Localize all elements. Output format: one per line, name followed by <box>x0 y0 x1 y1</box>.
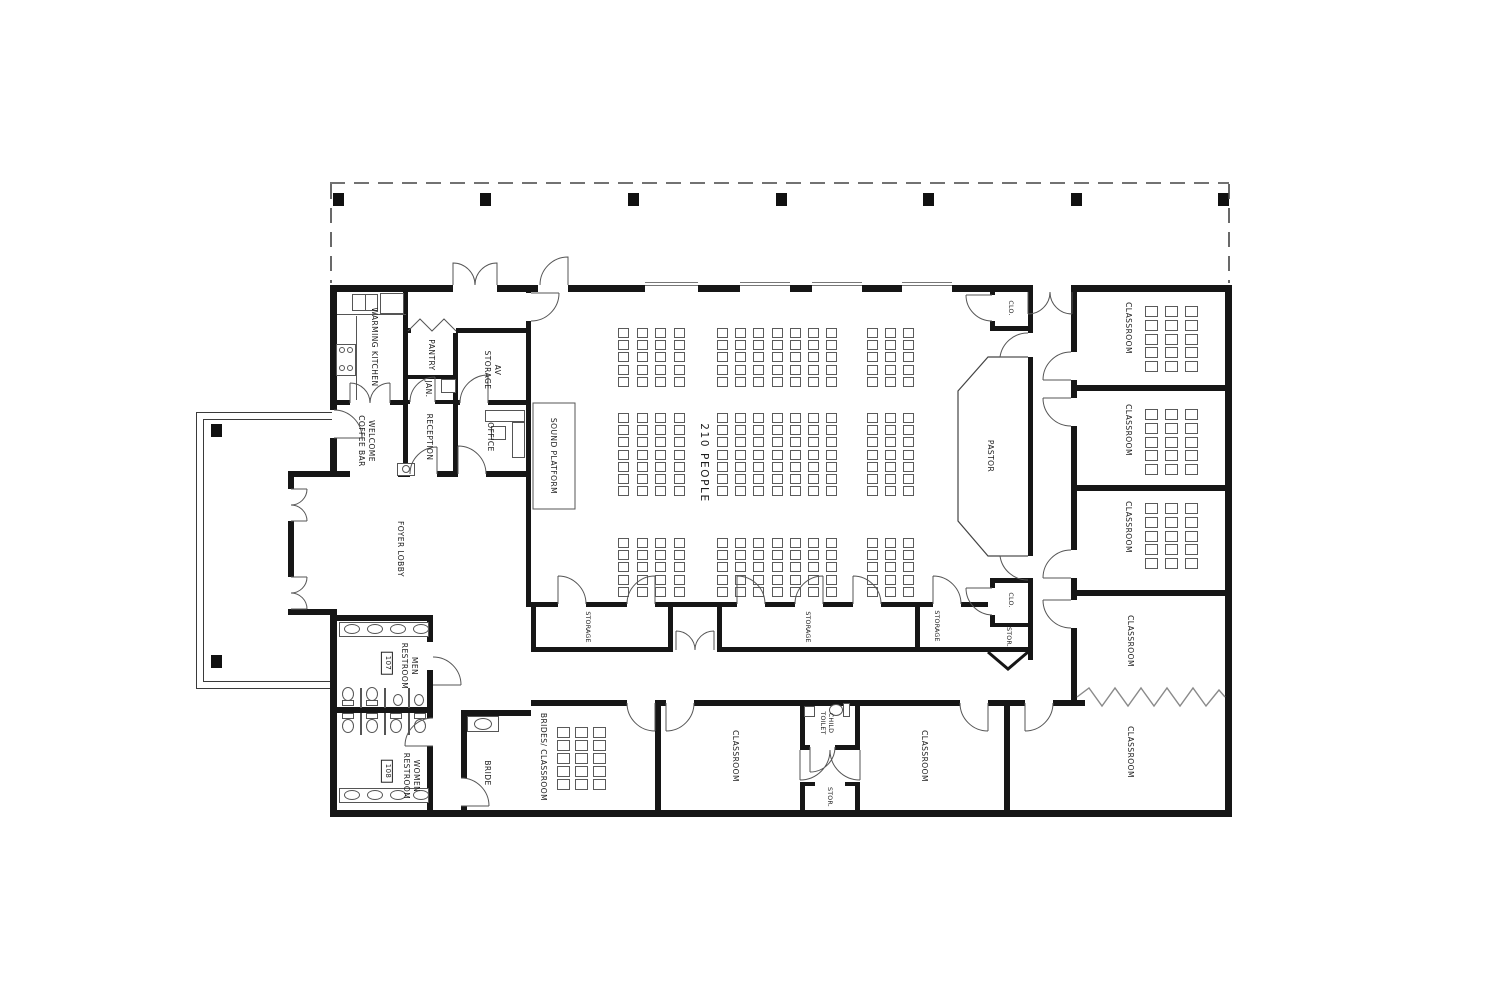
chair <box>808 413 819 423</box>
partition-line <box>365 294 366 311</box>
chair <box>808 377 819 387</box>
wall <box>1077 485 1225 491</box>
chair <box>790 437 801 447</box>
chair <box>557 727 570 738</box>
chair <box>826 575 837 585</box>
chair <box>735 562 746 572</box>
chair <box>717 462 728 472</box>
room-number-107: 107 <box>381 652 393 675</box>
room-label-office: OFFICE <box>485 422 495 451</box>
wall <box>531 700 627 706</box>
chair <box>903 462 914 472</box>
structural-column <box>333 193 344 206</box>
chair <box>903 377 914 387</box>
room-label-clo-top: CLO. <box>1006 300 1014 315</box>
floor-plan: WARMING KITCHEN PANTRY JAN. AV STORAGE R… <box>0 0 1500 1000</box>
chair <box>1165 320 1178 331</box>
chair <box>1165 334 1178 345</box>
chair <box>674 538 685 548</box>
room-label-clo-bottom: CLO. <box>1006 592 1014 607</box>
chair <box>735 377 746 387</box>
chair <box>655 562 666 572</box>
chair <box>1165 437 1178 448</box>
wall <box>1028 580 1033 660</box>
chair <box>1145 464 1158 475</box>
chair <box>885 462 896 472</box>
chair <box>1145 450 1158 461</box>
room-label-classroom-2: CLASSROOM <box>1123 404 1133 456</box>
chair <box>1185 464 1198 475</box>
chair <box>753 328 764 338</box>
plumbing-fixture <box>474 718 492 730</box>
chair <box>717 377 728 387</box>
chair <box>885 550 896 560</box>
wall <box>1077 590 1225 596</box>
wall <box>288 471 350 477</box>
chair <box>618 377 629 387</box>
chair <box>717 486 728 496</box>
chair <box>637 587 648 597</box>
wall <box>990 578 1033 583</box>
chair <box>772 328 783 338</box>
fixture <box>512 422 525 458</box>
chair <box>618 462 629 472</box>
chair <box>637 450 648 460</box>
chair <box>772 352 783 362</box>
wall <box>486 471 531 477</box>
chair <box>674 462 685 472</box>
chair <box>753 352 764 362</box>
chair <box>637 425 648 435</box>
wall <box>668 602 673 652</box>
chair <box>772 486 783 496</box>
chair <box>655 575 666 585</box>
chair <box>655 437 666 447</box>
entry-porch-inner <box>203 419 332 682</box>
chair <box>867 365 878 375</box>
chair <box>826 328 837 338</box>
chair <box>1165 423 1178 434</box>
chair <box>575 779 588 790</box>
chair <box>867 377 878 387</box>
chair <box>655 425 666 435</box>
chair <box>790 550 801 560</box>
chair <box>1145 558 1158 569</box>
room-label-classroom-3: CLASSROOM <box>1123 501 1133 553</box>
chair <box>717 413 728 423</box>
wall <box>288 521 294 577</box>
chair <box>772 462 783 472</box>
chair <box>808 474 819 484</box>
chair <box>790 450 801 460</box>
chair <box>1185 320 1198 331</box>
fixture <box>843 703 850 717</box>
chair <box>903 562 914 572</box>
chair <box>1145 320 1158 331</box>
chair <box>637 352 648 362</box>
wall <box>1004 706 1010 810</box>
plumbing-fixture <box>367 790 383 800</box>
wall <box>990 326 1033 331</box>
plumbing-fixture <box>390 624 406 634</box>
wall <box>1077 385 1225 391</box>
window-sill <box>902 282 952 286</box>
chair <box>885 352 896 362</box>
sanctuary-capacity-label: 210 PEOPLE <box>696 423 710 502</box>
plumbing-fixture <box>339 347 345 353</box>
plumbing-fixture <box>342 719 354 733</box>
room-label-storage-middle: STORAGE <box>803 611 811 642</box>
chair <box>885 538 896 548</box>
chair <box>826 538 837 548</box>
chair <box>593 727 606 738</box>
chair <box>735 474 746 484</box>
chair <box>1165 347 1178 358</box>
chair <box>637 340 648 350</box>
chair <box>674 486 685 496</box>
chair <box>618 340 629 350</box>
chair <box>790 575 801 585</box>
chair <box>593 753 606 764</box>
wall <box>1053 700 1085 706</box>
chair <box>674 425 685 435</box>
wall <box>800 786 805 810</box>
wall <box>655 706 661 810</box>
chair <box>717 550 728 560</box>
room-label-classroom-1: CLASSROOM <box>1123 302 1133 354</box>
wall <box>488 400 531 405</box>
chair <box>790 377 801 387</box>
chair <box>717 328 728 338</box>
chair <box>867 550 878 560</box>
room-label-classroom-b: CLASSROOM <box>919 730 929 782</box>
chair <box>790 587 801 597</box>
plumbing-fixture <box>366 687 378 701</box>
wall <box>823 602 853 607</box>
chair <box>674 575 685 585</box>
chair <box>753 562 764 572</box>
chair <box>1165 464 1178 475</box>
chair <box>717 437 728 447</box>
structural-column <box>776 193 787 206</box>
chair <box>903 425 914 435</box>
room-label-stor-bottom: STOR. <box>825 787 833 807</box>
chair <box>735 575 746 585</box>
room-label-stor-right: STOR. <box>1004 627 1012 647</box>
chair <box>618 352 629 362</box>
chair <box>1185 423 1198 434</box>
plumbing-fixture <box>347 365 353 371</box>
room-label-bride: BRIDE <box>482 760 492 785</box>
fixture <box>441 379 456 393</box>
wall <box>765 602 795 607</box>
chair <box>1145 531 1158 542</box>
room-label-welcome-coffee-bar: WELCOME COFFEE BAR <box>356 415 376 467</box>
chair <box>557 766 570 777</box>
chair <box>903 413 914 423</box>
chair <box>655 340 666 350</box>
chair <box>772 437 783 447</box>
plumbing-fixture <box>367 624 383 634</box>
chair <box>808 538 819 548</box>
chair <box>1165 450 1178 461</box>
chair <box>655 352 666 362</box>
plumbing-fixture <box>390 719 402 733</box>
plumbing-fixture <box>393 694 403 706</box>
chair <box>674 413 685 423</box>
chair <box>618 587 629 597</box>
chair <box>826 462 837 472</box>
chair <box>1165 409 1178 420</box>
chair <box>717 538 728 548</box>
chair <box>867 425 878 435</box>
chair <box>637 538 648 548</box>
chair <box>885 365 896 375</box>
chair <box>1145 347 1158 358</box>
wall <box>526 321 531 607</box>
chair <box>717 562 728 572</box>
chair <box>903 365 914 375</box>
chair <box>790 352 801 362</box>
chair <box>717 425 728 435</box>
chair <box>885 486 896 496</box>
chair <box>808 437 819 447</box>
fixture <box>804 706 815 717</box>
wall <box>568 285 645 292</box>
room-label-storage-left: STORAGE <box>583 611 591 642</box>
wall <box>800 745 810 750</box>
chair <box>1145 423 1158 434</box>
wall <box>427 746 433 817</box>
chair <box>826 425 837 435</box>
wall <box>497 285 538 292</box>
partition-line <box>408 713 410 735</box>
chair <box>903 474 914 484</box>
chair <box>717 474 728 484</box>
wall <box>531 602 536 652</box>
room-label-storage-right: STORAGE <box>932 610 940 641</box>
chair <box>1185 361 1198 372</box>
chair <box>593 766 606 777</box>
chair <box>867 413 878 423</box>
chair <box>674 550 685 560</box>
chair <box>772 474 783 484</box>
chair <box>717 450 728 460</box>
partition-line <box>356 316 357 400</box>
room-label-classroom-4: CLASSROOM <box>1125 615 1135 667</box>
wall <box>717 647 1033 652</box>
chair <box>790 340 801 350</box>
partition-line <box>408 688 410 708</box>
wall <box>288 477 294 489</box>
chair <box>753 575 764 585</box>
chair <box>790 328 801 338</box>
chair <box>1185 558 1198 569</box>
chair <box>808 328 819 338</box>
chair <box>1185 503 1198 514</box>
chair <box>575 766 588 777</box>
chair <box>637 562 648 572</box>
chair <box>808 562 819 572</box>
chair <box>885 587 896 597</box>
chair <box>637 462 648 472</box>
chair <box>753 486 764 496</box>
chair <box>735 486 746 496</box>
wall <box>427 670 433 718</box>
chair <box>826 352 837 362</box>
chair <box>772 587 783 597</box>
wall <box>1225 285 1232 817</box>
plumbing-fixture <box>344 624 360 634</box>
chair <box>867 562 878 572</box>
partition-line <box>360 713 362 735</box>
chair <box>808 575 819 585</box>
chair <box>655 365 666 375</box>
wall <box>990 615 995 623</box>
chair <box>885 328 896 338</box>
chair <box>735 538 746 548</box>
room-label-janitor: JAN. <box>423 380 433 397</box>
plumbing-fixture <box>414 719 426 733</box>
chair <box>772 413 783 423</box>
room-label-child-toilet: CHILD TOILET <box>818 711 834 734</box>
chair <box>674 352 685 362</box>
chair <box>885 474 896 484</box>
chair <box>575 753 588 764</box>
room-label-brides-classroom: BRIDES/ CLASSROOM <box>538 713 548 801</box>
chair <box>674 450 685 460</box>
chair <box>618 328 629 338</box>
chair <box>903 340 914 350</box>
chair <box>885 340 896 350</box>
wall <box>855 706 860 750</box>
chair <box>903 538 914 548</box>
chair <box>808 587 819 597</box>
chair <box>753 462 764 472</box>
chair <box>575 740 588 751</box>
chair <box>772 450 783 460</box>
wall <box>330 615 337 817</box>
chair <box>557 779 570 790</box>
chair <box>717 365 728 375</box>
chair <box>867 352 878 362</box>
room-label-reception: RECEPTION <box>424 414 434 461</box>
room-label-classroom-c: CLASSROOM <box>1125 726 1135 778</box>
chair <box>867 587 878 597</box>
chair <box>1185 409 1198 420</box>
room-label-warming-kitchen: WARMING KITCHEN <box>369 307 379 386</box>
wall <box>860 700 960 706</box>
wall <box>990 290 995 295</box>
wall <box>1072 285 1232 292</box>
chair <box>637 413 648 423</box>
chair <box>1145 517 1158 528</box>
wall <box>330 285 453 292</box>
window-sill <box>645 282 698 286</box>
chair <box>618 486 629 496</box>
room-label-classroom-a: CLASSROOM <box>730 730 740 782</box>
chair <box>753 340 764 350</box>
chair <box>1185 306 1198 317</box>
chair <box>593 740 606 751</box>
window-sill <box>812 282 862 286</box>
chair <box>867 486 878 496</box>
stor-angled-walls <box>988 652 1028 669</box>
chair <box>867 328 878 338</box>
chair <box>1145 361 1158 372</box>
chair <box>753 365 764 375</box>
chair <box>885 425 896 435</box>
chair <box>885 562 896 572</box>
chair <box>753 587 764 597</box>
chair <box>753 377 764 387</box>
room-label-men-restroom: MEN RESTROOM <box>399 643 419 689</box>
chair <box>735 413 746 423</box>
chair <box>903 437 914 447</box>
chair <box>772 365 783 375</box>
plumbing-fixture <box>413 624 429 634</box>
wall <box>456 328 531 333</box>
room-label-pantry: PANTRY <box>426 339 436 370</box>
chair <box>826 413 837 423</box>
chair <box>790 538 801 548</box>
chair <box>772 340 783 350</box>
structural-column <box>211 424 222 437</box>
wall <box>461 806 467 817</box>
chair <box>637 575 648 585</box>
wall <box>337 400 350 405</box>
chair <box>637 328 648 338</box>
chair <box>655 587 666 597</box>
chair <box>1185 347 1198 358</box>
chair <box>655 328 666 338</box>
chair <box>674 474 685 484</box>
chair <box>618 575 629 585</box>
chair <box>867 538 878 548</box>
chair <box>903 486 914 496</box>
wall <box>453 400 460 405</box>
chair <box>903 328 914 338</box>
chair <box>674 328 685 338</box>
chair <box>637 377 648 387</box>
chair <box>735 340 746 350</box>
chair <box>903 575 914 585</box>
chair <box>735 550 746 560</box>
chair <box>808 550 819 560</box>
chair <box>735 352 746 362</box>
chair <box>1145 437 1158 448</box>
chair <box>867 340 878 350</box>
chair <box>1185 544 1198 555</box>
chair <box>753 425 764 435</box>
room-label-women-restroom: WOMEN RESTROOM <box>401 753 421 799</box>
chair <box>903 550 914 560</box>
unfinished-break-zigzag <box>1077 688 1225 706</box>
wall <box>1028 285 1033 333</box>
chair <box>753 538 764 548</box>
wall <box>1071 578 1077 600</box>
wall <box>531 647 673 652</box>
chair <box>717 575 728 585</box>
chair <box>1165 544 1178 555</box>
chair <box>1185 531 1198 542</box>
chair <box>753 450 764 460</box>
window-sill <box>740 282 790 286</box>
chair <box>808 425 819 435</box>
chair <box>674 587 685 597</box>
chair <box>735 365 746 375</box>
chair <box>655 550 666 560</box>
